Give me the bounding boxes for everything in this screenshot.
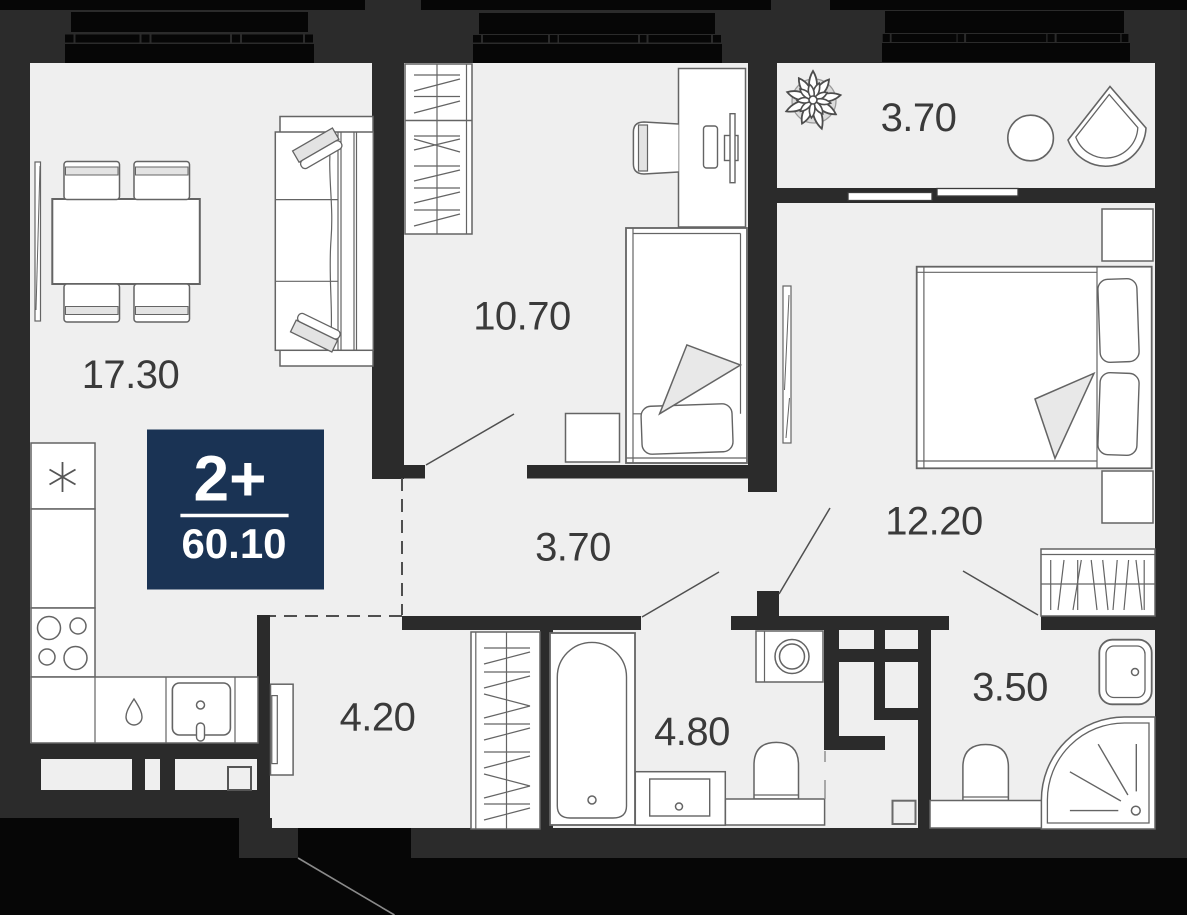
svg-text:4.80: 4.80 (654, 710, 730, 754)
svg-text:4.20: 4.20 (340, 696, 416, 740)
svg-text:3.70: 3.70 (881, 96, 957, 140)
svg-text:60.10: 60.10 (181, 520, 286, 567)
svg-text:3.50: 3.50 (972, 666, 1048, 710)
svg-text:12.20: 12.20 (885, 500, 983, 544)
svg-text:2+: 2+ (194, 443, 267, 515)
svg-text:17.30: 17.30 (82, 353, 180, 397)
svg-text:10.70: 10.70 (473, 295, 571, 339)
svg-text:3.70: 3.70 (535, 526, 611, 570)
